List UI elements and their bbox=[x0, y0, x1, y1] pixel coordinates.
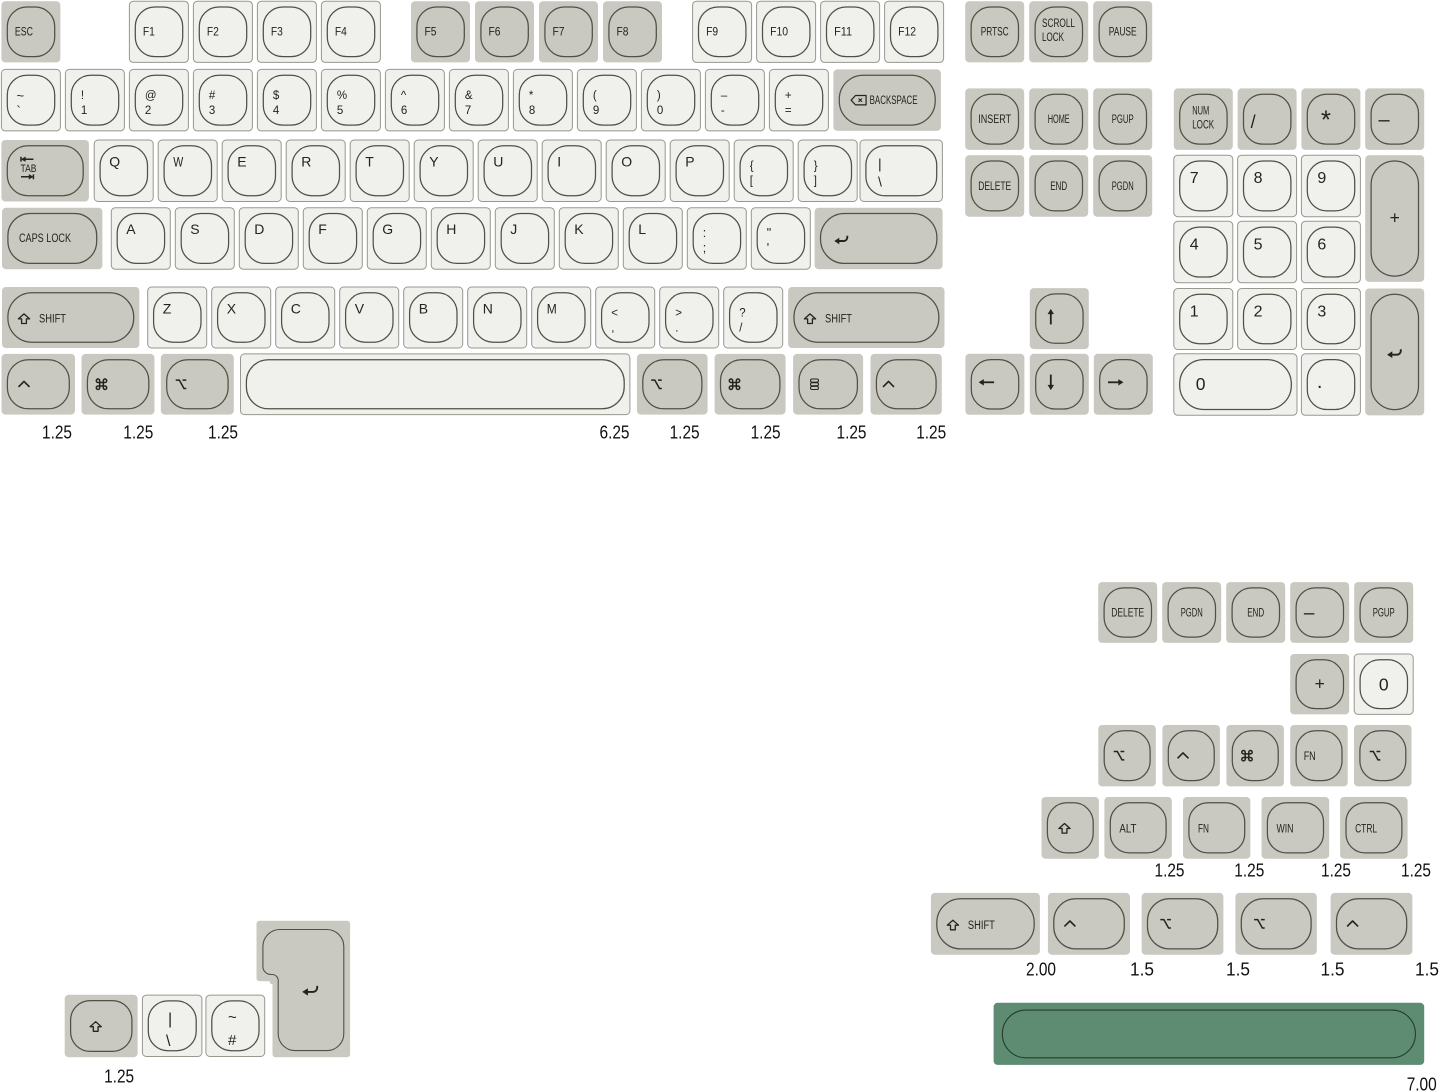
svg-text:#: # bbox=[228, 1032, 237, 1049]
svg-text:Z: Z bbox=[163, 301, 172, 317]
svg-text:*: * bbox=[1321, 104, 1331, 134]
svg-text:(: ( bbox=[593, 90, 597, 102]
svg-text:D: D bbox=[254, 221, 264, 237]
svg-text:1.25: 1.25 bbox=[1401, 860, 1431, 881]
svg-text:O: O bbox=[621, 154, 632, 170]
svg-text:7.00: 7.00 bbox=[1407, 1074, 1437, 1092]
svg-text:;: ; bbox=[703, 241, 706, 255]
svg-text:{: { bbox=[750, 161, 754, 173]
svg-text:END: END bbox=[1050, 181, 1067, 193]
svg-text:%: % bbox=[337, 90, 347, 102]
svg-text:1.25: 1.25 bbox=[123, 421, 153, 442]
svg-text:1.25: 1.25 bbox=[1321, 860, 1351, 881]
svg-text:–: – bbox=[1304, 603, 1315, 624]
svg-text:K: K bbox=[574, 221, 584, 237]
svg-text:TAB: TAB bbox=[21, 163, 37, 175]
svg-text:>: > bbox=[675, 308, 682, 320]
svg-text:SHIFT: SHIFT bbox=[825, 314, 852, 326]
svg-text:": " bbox=[767, 226, 771, 240]
svg-text:F: F bbox=[318, 221, 327, 237]
svg-text:S: S bbox=[190, 221, 199, 237]
svg-text:–: – bbox=[721, 90, 728, 102]
svg-text:): ) bbox=[657, 90, 661, 102]
svg-text:U: U bbox=[493, 154, 503, 170]
svg-text:=: = bbox=[785, 105, 792, 117]
svg-text:~: ~ bbox=[17, 88, 25, 103]
svg-text:V: V bbox=[355, 301, 365, 317]
svg-text:&: & bbox=[465, 90, 473, 102]
svg-text:Y: Y bbox=[429, 154, 439, 170]
svg-text:4: 4 bbox=[273, 105, 280, 117]
svg-text:F2: F2 bbox=[207, 24, 219, 38]
svg-text:P: P bbox=[685, 154, 694, 170]
svg-text:~: ~ bbox=[228, 1009, 237, 1026]
svg-text:DELETE: DELETE bbox=[1111, 607, 1144, 619]
svg-text:–: – bbox=[1378, 109, 1390, 131]
svg-text:6: 6 bbox=[401, 105, 407, 117]
svg-text:PGUP: PGUP bbox=[1373, 607, 1395, 619]
svg-text:1.25: 1.25 bbox=[670, 421, 700, 442]
svg-text:*: * bbox=[529, 90, 534, 102]
svg-text:+: + bbox=[1390, 208, 1400, 228]
svg-text:E: E bbox=[237, 154, 246, 170]
svg-text:@: @ bbox=[145, 90, 157, 102]
svg-text:?: ? bbox=[739, 308, 745, 320]
svg-text:HOME: HOME bbox=[1048, 114, 1070, 126]
svg-text:/: / bbox=[1251, 112, 1256, 132]
svg-text:ALT: ALT bbox=[1119, 824, 1136, 836]
svg-text:`: ` bbox=[17, 103, 21, 118]
svg-text:^: ^ bbox=[401, 90, 407, 102]
svg-text:DELETE: DELETE bbox=[978, 181, 1011, 193]
svg-text:+: + bbox=[785, 90, 792, 102]
svg-text:9: 9 bbox=[593, 105, 599, 117]
svg-text:$: $ bbox=[273, 90, 280, 102]
svg-text:F6: F6 bbox=[489, 24, 501, 38]
svg-text:SHIFT: SHIFT bbox=[39, 314, 66, 326]
svg-text:5: 5 bbox=[1254, 236, 1263, 253]
svg-text:W: W bbox=[173, 154, 184, 170]
svg-text:LOCK: LOCK bbox=[1042, 32, 1064, 44]
svg-text:NUM: NUM bbox=[1192, 105, 1209, 117]
svg-text:F5: F5 bbox=[425, 24, 437, 38]
svg-text:0: 0 bbox=[1196, 374, 1206, 394]
svg-text:CTRL: CTRL bbox=[1355, 824, 1377, 836]
svg-text:F12: F12 bbox=[898, 24, 916, 38]
svg-text:1.25: 1.25 bbox=[104, 1065, 134, 1086]
svg-text:1: 1 bbox=[1190, 304, 1199, 321]
svg-text:,: , bbox=[611, 323, 614, 335]
svg-text:7: 7 bbox=[1190, 170, 1199, 187]
svg-text:F4: F4 bbox=[335, 24, 347, 38]
svg-text:1.25: 1.25 bbox=[837, 421, 867, 442]
svg-text:!: ! bbox=[81, 90, 84, 102]
svg-text:1.5: 1.5 bbox=[1130, 959, 1154, 980]
svg-text:\: \ bbox=[878, 174, 882, 190]
svg-text:SCROLL: SCROLL bbox=[1042, 18, 1075, 30]
svg-text:8: 8 bbox=[529, 105, 535, 117]
svg-text:F11: F11 bbox=[834, 24, 852, 38]
svg-text:M: M bbox=[547, 301, 557, 317]
svg-text:#: # bbox=[209, 90, 216, 102]
svg-text:8: 8 bbox=[1254, 170, 1263, 187]
svg-text:2: 2 bbox=[145, 105, 151, 117]
svg-text:C: C bbox=[291, 301, 301, 317]
svg-text:PRTSC: PRTSC bbox=[981, 27, 1009, 39]
svg-text:BACKSPACE: BACKSPACE bbox=[870, 95, 918, 107]
svg-text:7: 7 bbox=[465, 105, 471, 117]
svg-text::: : bbox=[703, 226, 706, 240]
svg-text:I: I bbox=[557, 154, 561, 170]
svg-text:PGDN: PGDN bbox=[1112, 181, 1134, 193]
svg-text:Q: Q bbox=[109, 154, 120, 170]
svg-text:]: ] bbox=[814, 176, 817, 188]
svg-text:|: | bbox=[168, 1011, 172, 1028]
svg-text:B: B bbox=[419, 301, 428, 317]
svg-text:1.25: 1.25 bbox=[1234, 860, 1264, 881]
svg-text:+: + bbox=[1315, 673, 1325, 693]
svg-text:WIN: WIN bbox=[1277, 824, 1294, 836]
svg-text:1.25: 1.25 bbox=[42, 421, 72, 442]
svg-text:2.00: 2.00 bbox=[1026, 959, 1056, 980]
svg-text:ESC: ESC bbox=[15, 24, 33, 38]
svg-text:1: 1 bbox=[81, 105, 87, 117]
svg-text:4: 4 bbox=[1190, 236, 1199, 253]
svg-text:0: 0 bbox=[1379, 675, 1389, 695]
svg-text:.: . bbox=[1317, 371, 1323, 393]
svg-text:F8: F8 bbox=[617, 24, 629, 38]
svg-text:1.25: 1.25 bbox=[208, 421, 238, 442]
svg-text:6: 6 bbox=[1317, 236, 1326, 253]
svg-text:L: L bbox=[638, 221, 646, 237]
svg-text:H: H bbox=[446, 221, 456, 237]
svg-text:F1: F1 bbox=[143, 24, 155, 38]
svg-text:': ' bbox=[767, 241, 769, 255]
svg-text:R: R bbox=[301, 154, 311, 170]
svg-text:.: . bbox=[675, 323, 678, 335]
svg-text:PGUP: PGUP bbox=[1112, 114, 1134, 126]
svg-text:-: - bbox=[721, 105, 725, 117]
svg-text:|: | bbox=[878, 156, 882, 172]
svg-text:1.5: 1.5 bbox=[1321, 959, 1345, 980]
svg-text:2: 2 bbox=[1254, 304, 1263, 321]
svg-text:F10: F10 bbox=[770, 24, 788, 38]
svg-text:1.25: 1.25 bbox=[1155, 860, 1185, 881]
svg-text:3: 3 bbox=[1317, 304, 1326, 321]
svg-text:A: A bbox=[126, 221, 136, 237]
svg-text:F9: F9 bbox=[706, 24, 718, 38]
svg-text:<: < bbox=[611, 308, 618, 320]
svg-text:1.25: 1.25 bbox=[751, 421, 781, 442]
svg-text:SHIFT: SHIFT bbox=[968, 920, 995, 932]
svg-text:1.5: 1.5 bbox=[1226, 959, 1250, 980]
svg-text:\: \ bbox=[166, 1033, 171, 1050]
svg-text:0: 0 bbox=[657, 105, 663, 117]
svg-text:END: END bbox=[1247, 607, 1264, 619]
svg-text:CAPS LOCK: CAPS LOCK bbox=[19, 233, 71, 245]
svg-text:6.25: 6.25 bbox=[600, 421, 630, 442]
svg-text:}: } bbox=[814, 161, 818, 173]
svg-text:FN: FN bbox=[1304, 751, 1316, 763]
svg-text:9: 9 bbox=[1317, 170, 1326, 187]
svg-text:1.25: 1.25 bbox=[916, 421, 946, 442]
svg-text:F3: F3 bbox=[271, 24, 283, 38]
svg-text:G: G bbox=[382, 221, 393, 237]
svg-text:X: X bbox=[227, 301, 237, 317]
svg-text:PGDN: PGDN bbox=[1181, 607, 1203, 619]
svg-text:1.5: 1.5 bbox=[1415, 959, 1439, 980]
svg-text:3: 3 bbox=[209, 105, 215, 117]
svg-text:INSERT: INSERT bbox=[978, 114, 1011, 126]
svg-text:FN: FN bbox=[1198, 824, 1209, 836]
svg-text:PAUSE: PAUSE bbox=[1109, 27, 1137, 39]
svg-text:LOCK: LOCK bbox=[1192, 119, 1214, 131]
svg-text:N: N bbox=[483, 301, 493, 317]
svg-text:J: J bbox=[510, 221, 517, 237]
svg-text:T: T bbox=[365, 154, 374, 170]
svg-text:F7: F7 bbox=[553, 24, 565, 38]
svg-text:5: 5 bbox=[337, 105, 343, 117]
